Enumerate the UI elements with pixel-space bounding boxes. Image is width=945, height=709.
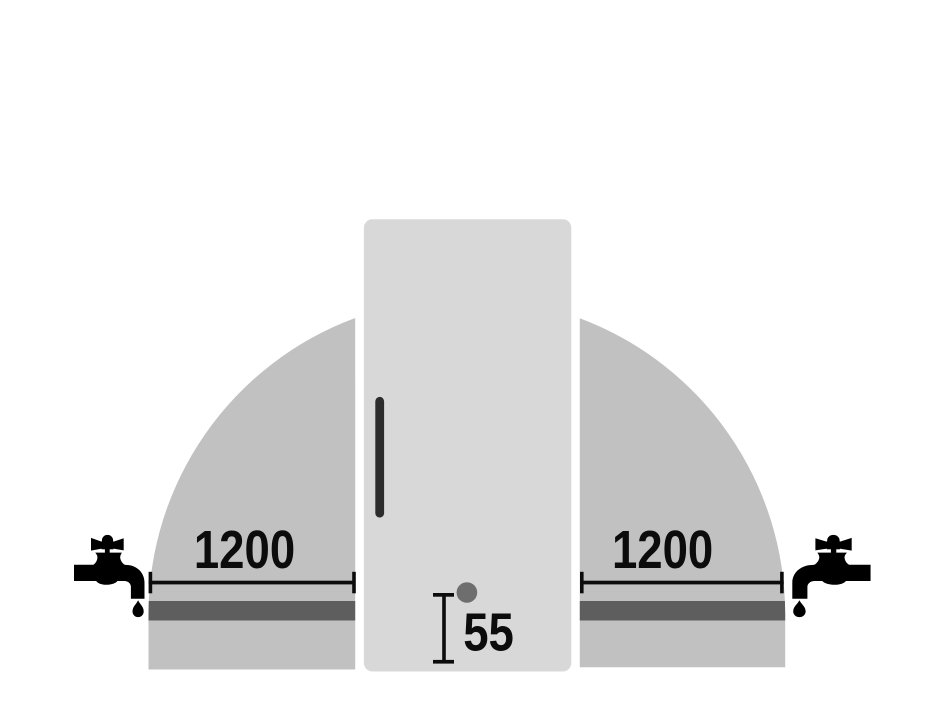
svg-text:1200: 1200 <box>612 519 713 580</box>
svg-text:55: 55 <box>463 602 514 663</box>
svg-text:1200: 1200 <box>194 519 295 580</box>
